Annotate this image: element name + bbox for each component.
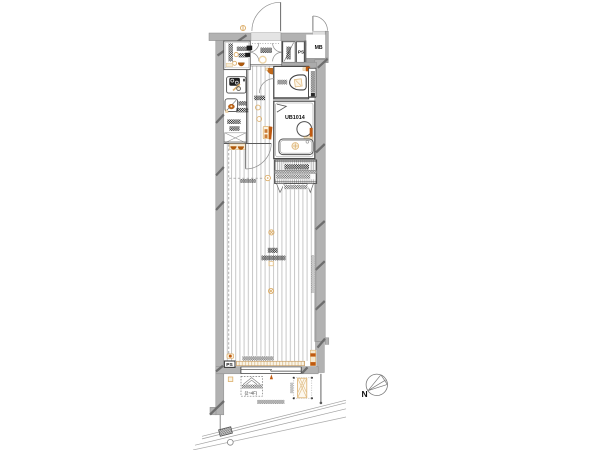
svg-text:N: N bbox=[362, 389, 368, 399]
svg-text:PS: PS bbox=[226, 362, 233, 368]
svg-text:MB: MB bbox=[315, 45, 323, 51]
svg-text:UB1014: UB1014 bbox=[285, 115, 305, 121]
svg-text:(2~4F): (2~4F) bbox=[245, 391, 258, 396]
svg-text:PS: PS bbox=[298, 50, 304, 55]
